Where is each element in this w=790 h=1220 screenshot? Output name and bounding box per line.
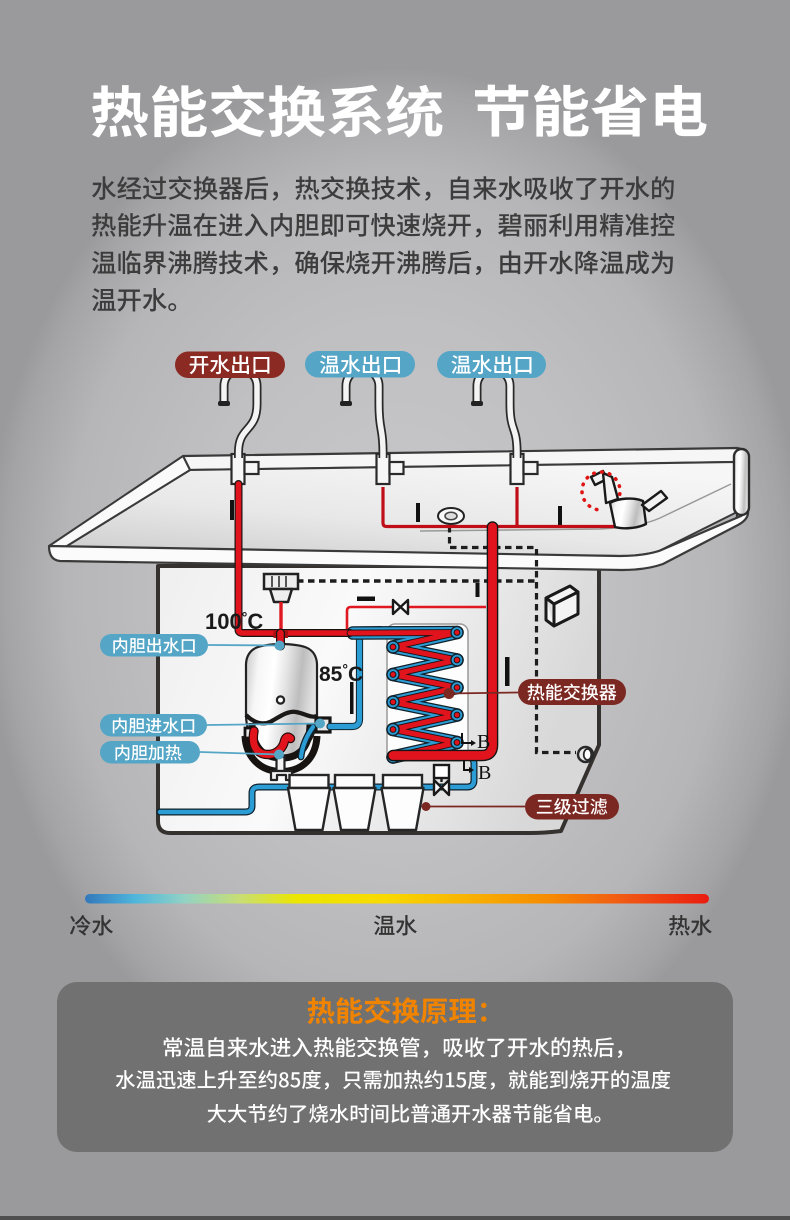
- svg-text:B: B: [477, 731, 490, 753]
- svg-text:B: B: [478, 762, 491, 784]
- svg-text:85°C: 85°C: [319, 661, 363, 686]
- svg-text:100°C: 100°C: [205, 609, 263, 634]
